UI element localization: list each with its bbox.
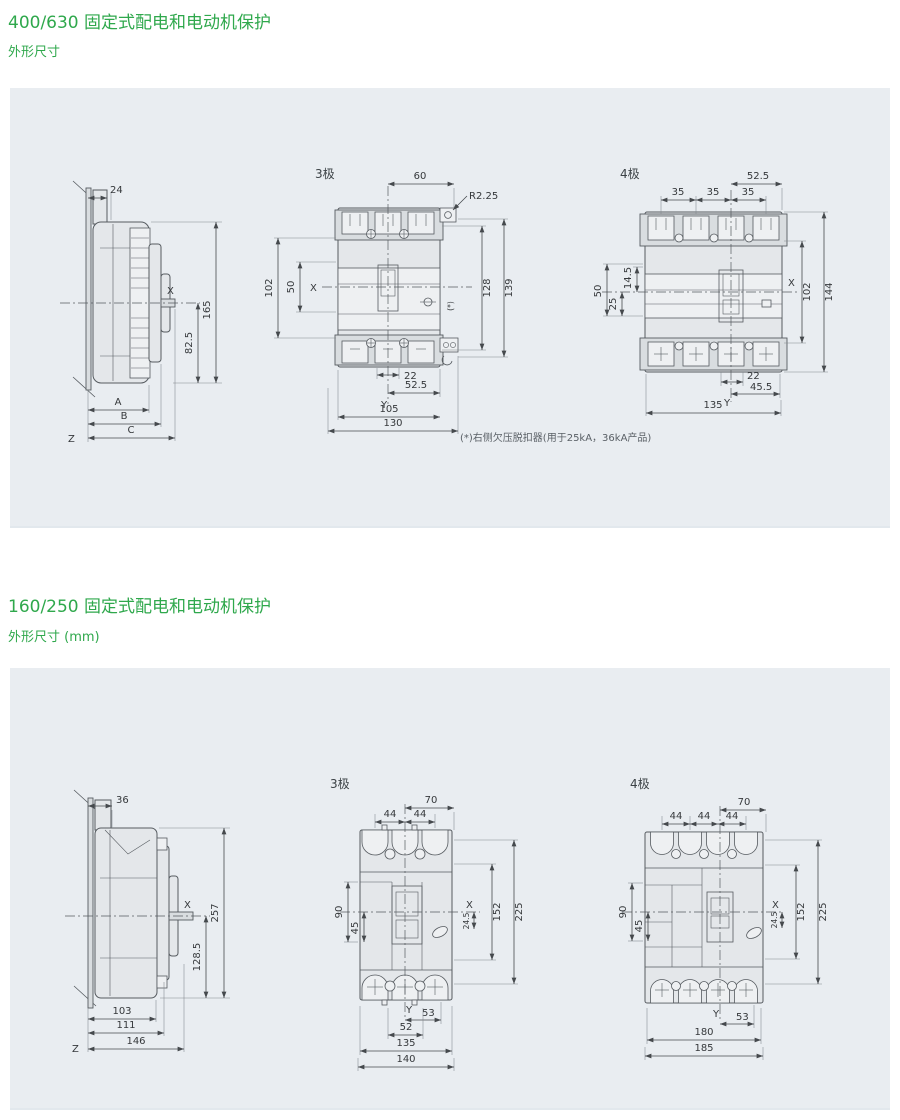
s1-dim-144: 144 xyxy=(824,282,835,301)
s2-pole3-view: 3极 xyxy=(330,777,525,1071)
s2-pole4-axis-y: Y xyxy=(712,1009,720,1020)
s1-pole3-axis-x: X xyxy=(310,283,317,294)
s2-dim-24_5: 24.5 xyxy=(462,912,471,929)
s1-side-axis-z: Z xyxy=(68,434,75,445)
s1-dim-50: 50 xyxy=(286,281,297,294)
section1-diagram: X 24 165 82.5 A B C Z 3极 xyxy=(10,88,890,526)
section2-subtitle: 外形尺寸 (mm) xyxy=(8,626,100,645)
s2-dim-140: 140 xyxy=(396,1054,415,1065)
s2-dim-53b: 53 xyxy=(736,1012,749,1023)
s1-dim-102b: 102 xyxy=(802,282,813,301)
s1-dim-52_5b: 52.5 xyxy=(747,171,769,182)
s1-dim-35a: 35 xyxy=(672,187,685,198)
s1-dim-139: 139 xyxy=(504,278,515,297)
s1-dim-60: 60 xyxy=(414,171,427,182)
section1-subtitle: 外形尺寸 xyxy=(8,41,60,60)
s2-dim-44e: 44 xyxy=(726,811,739,822)
s2-dim-44c: 44 xyxy=(670,811,683,822)
section2-diagram: X 36 257 128.5 103 111 146 Z 3极 xyxy=(10,668,890,1108)
s1-dim-25: 25 xyxy=(608,298,619,311)
s2-dim-52: 52 xyxy=(400,1022,413,1033)
s2-dim-225: 225 xyxy=(514,902,525,921)
s1-dim-128: 128 xyxy=(482,278,493,297)
s1-pole4-view: 4极 52.5 xyxy=(593,167,835,416)
s1-dim-45_5: 45.5 xyxy=(750,382,772,393)
s2-dim-152: 152 xyxy=(492,902,503,921)
s2-dim-111: 111 xyxy=(116,1020,135,1031)
s1-dim-165: 165 xyxy=(202,300,213,319)
s2-dim-24_5b: 24.5 xyxy=(770,911,779,928)
s2-pole3-axis-x: X xyxy=(466,900,473,911)
s2-dim-90: 90 xyxy=(334,906,345,919)
s1-dim-R2_25: R2.25 xyxy=(469,191,498,202)
s2-pole4-view: 4极 xyxy=(618,777,829,1060)
s2-pole4-label: 4极 xyxy=(630,777,650,791)
s2-dim-70: 70 xyxy=(425,795,438,806)
s1-dim-B: B xyxy=(121,411,128,422)
section2-title: 160/250 固定式配电和电动机保护 xyxy=(8,592,271,617)
s1-dim-C: C xyxy=(128,425,135,436)
s2-dim-53: 53 xyxy=(422,1008,435,1019)
s2-dim-44b: 44 xyxy=(414,809,427,820)
s1-dim-A: A xyxy=(115,397,122,408)
s2-dim-152b: 152 xyxy=(796,902,807,921)
s1-pole3-star: (*) xyxy=(446,301,455,311)
s2-dim-45: 45 xyxy=(350,922,361,935)
s1-dim-130: 130 xyxy=(383,418,402,429)
s1-pole4-label: 4极 xyxy=(620,167,640,181)
s2-dim-90b: 90 xyxy=(618,906,629,919)
s2-dim-135: 135 xyxy=(396,1038,415,1049)
section2-panel: X 36 257 128.5 103 111 146 Z 3极 xyxy=(10,668,890,1110)
s2-dim-70b: 70 xyxy=(738,797,751,808)
s2-pole3-label: 3极 xyxy=(330,777,350,791)
s2-dim-44d: 44 xyxy=(698,811,711,822)
s1-dim-105: 105 xyxy=(379,404,398,415)
s1-dim-35b: 35 xyxy=(707,187,720,198)
s2-dim-128_5: 128.5 xyxy=(192,943,203,972)
s1-dim-24: 24 xyxy=(110,185,123,196)
s1-dim-135: 135 xyxy=(703,400,722,411)
s2-side-axis-z: Z xyxy=(72,1044,79,1055)
section1-title: 400/630 固定式配电和电动机保护 xyxy=(8,8,271,33)
s2-dim-44a: 44 xyxy=(384,809,397,820)
s1-pole3-corner-tab xyxy=(440,208,456,222)
s2-dim-36: 36 xyxy=(116,795,129,806)
s2-pole4-axis-x: X xyxy=(772,900,779,911)
s1-dim-102: 102 xyxy=(264,278,275,297)
section1-panel: X 24 165 82.5 A B C Z 3极 xyxy=(10,88,890,528)
s2-side-axis-x: X xyxy=(184,900,191,911)
s1-dim-35c: 35 xyxy=(742,187,755,198)
s1-pole4-axis-y: Y xyxy=(723,398,731,409)
s2-dim-257: 257 xyxy=(210,903,221,922)
s2-dim-180: 180 xyxy=(694,1027,713,1038)
s1-pole3-label: 3极 xyxy=(315,167,335,181)
s2-dim-103: 103 xyxy=(112,1006,131,1017)
s1-dim-82_5: 82.5 xyxy=(184,332,195,354)
catalog-page: 400/630 固定式配电和电动机保护 外形尺寸 xyxy=(0,0,900,1120)
s2-side-view: X 36 257 128.5 103 111 146 Z xyxy=(65,790,230,1055)
s2-dim-225b: 225 xyxy=(818,902,829,921)
s1-side-axis-x: X xyxy=(167,286,174,297)
s1-dim-52_5: 52.5 xyxy=(405,380,427,391)
s2-dim-45b: 45 xyxy=(634,920,645,933)
s1-dim-14_5: 14.5 xyxy=(623,267,634,289)
s2-pole3-axis-y: Y xyxy=(405,1005,413,1016)
s2-dim-185: 185 xyxy=(694,1043,713,1054)
s1-side-view: X 24 165 82.5 A B C Z xyxy=(60,181,222,445)
s1-footnote: (*)右侧欠压脱扣器(用于25kA，36kA产品) xyxy=(460,431,651,444)
s2-dim-146: 146 xyxy=(126,1036,145,1047)
s1-pole4-axis-x: X xyxy=(788,278,795,289)
s1-dim-22b: 22 xyxy=(747,371,760,382)
s1-dim-50b: 50 xyxy=(593,285,604,298)
s1-pole3-view: 3极 xyxy=(264,167,651,444)
